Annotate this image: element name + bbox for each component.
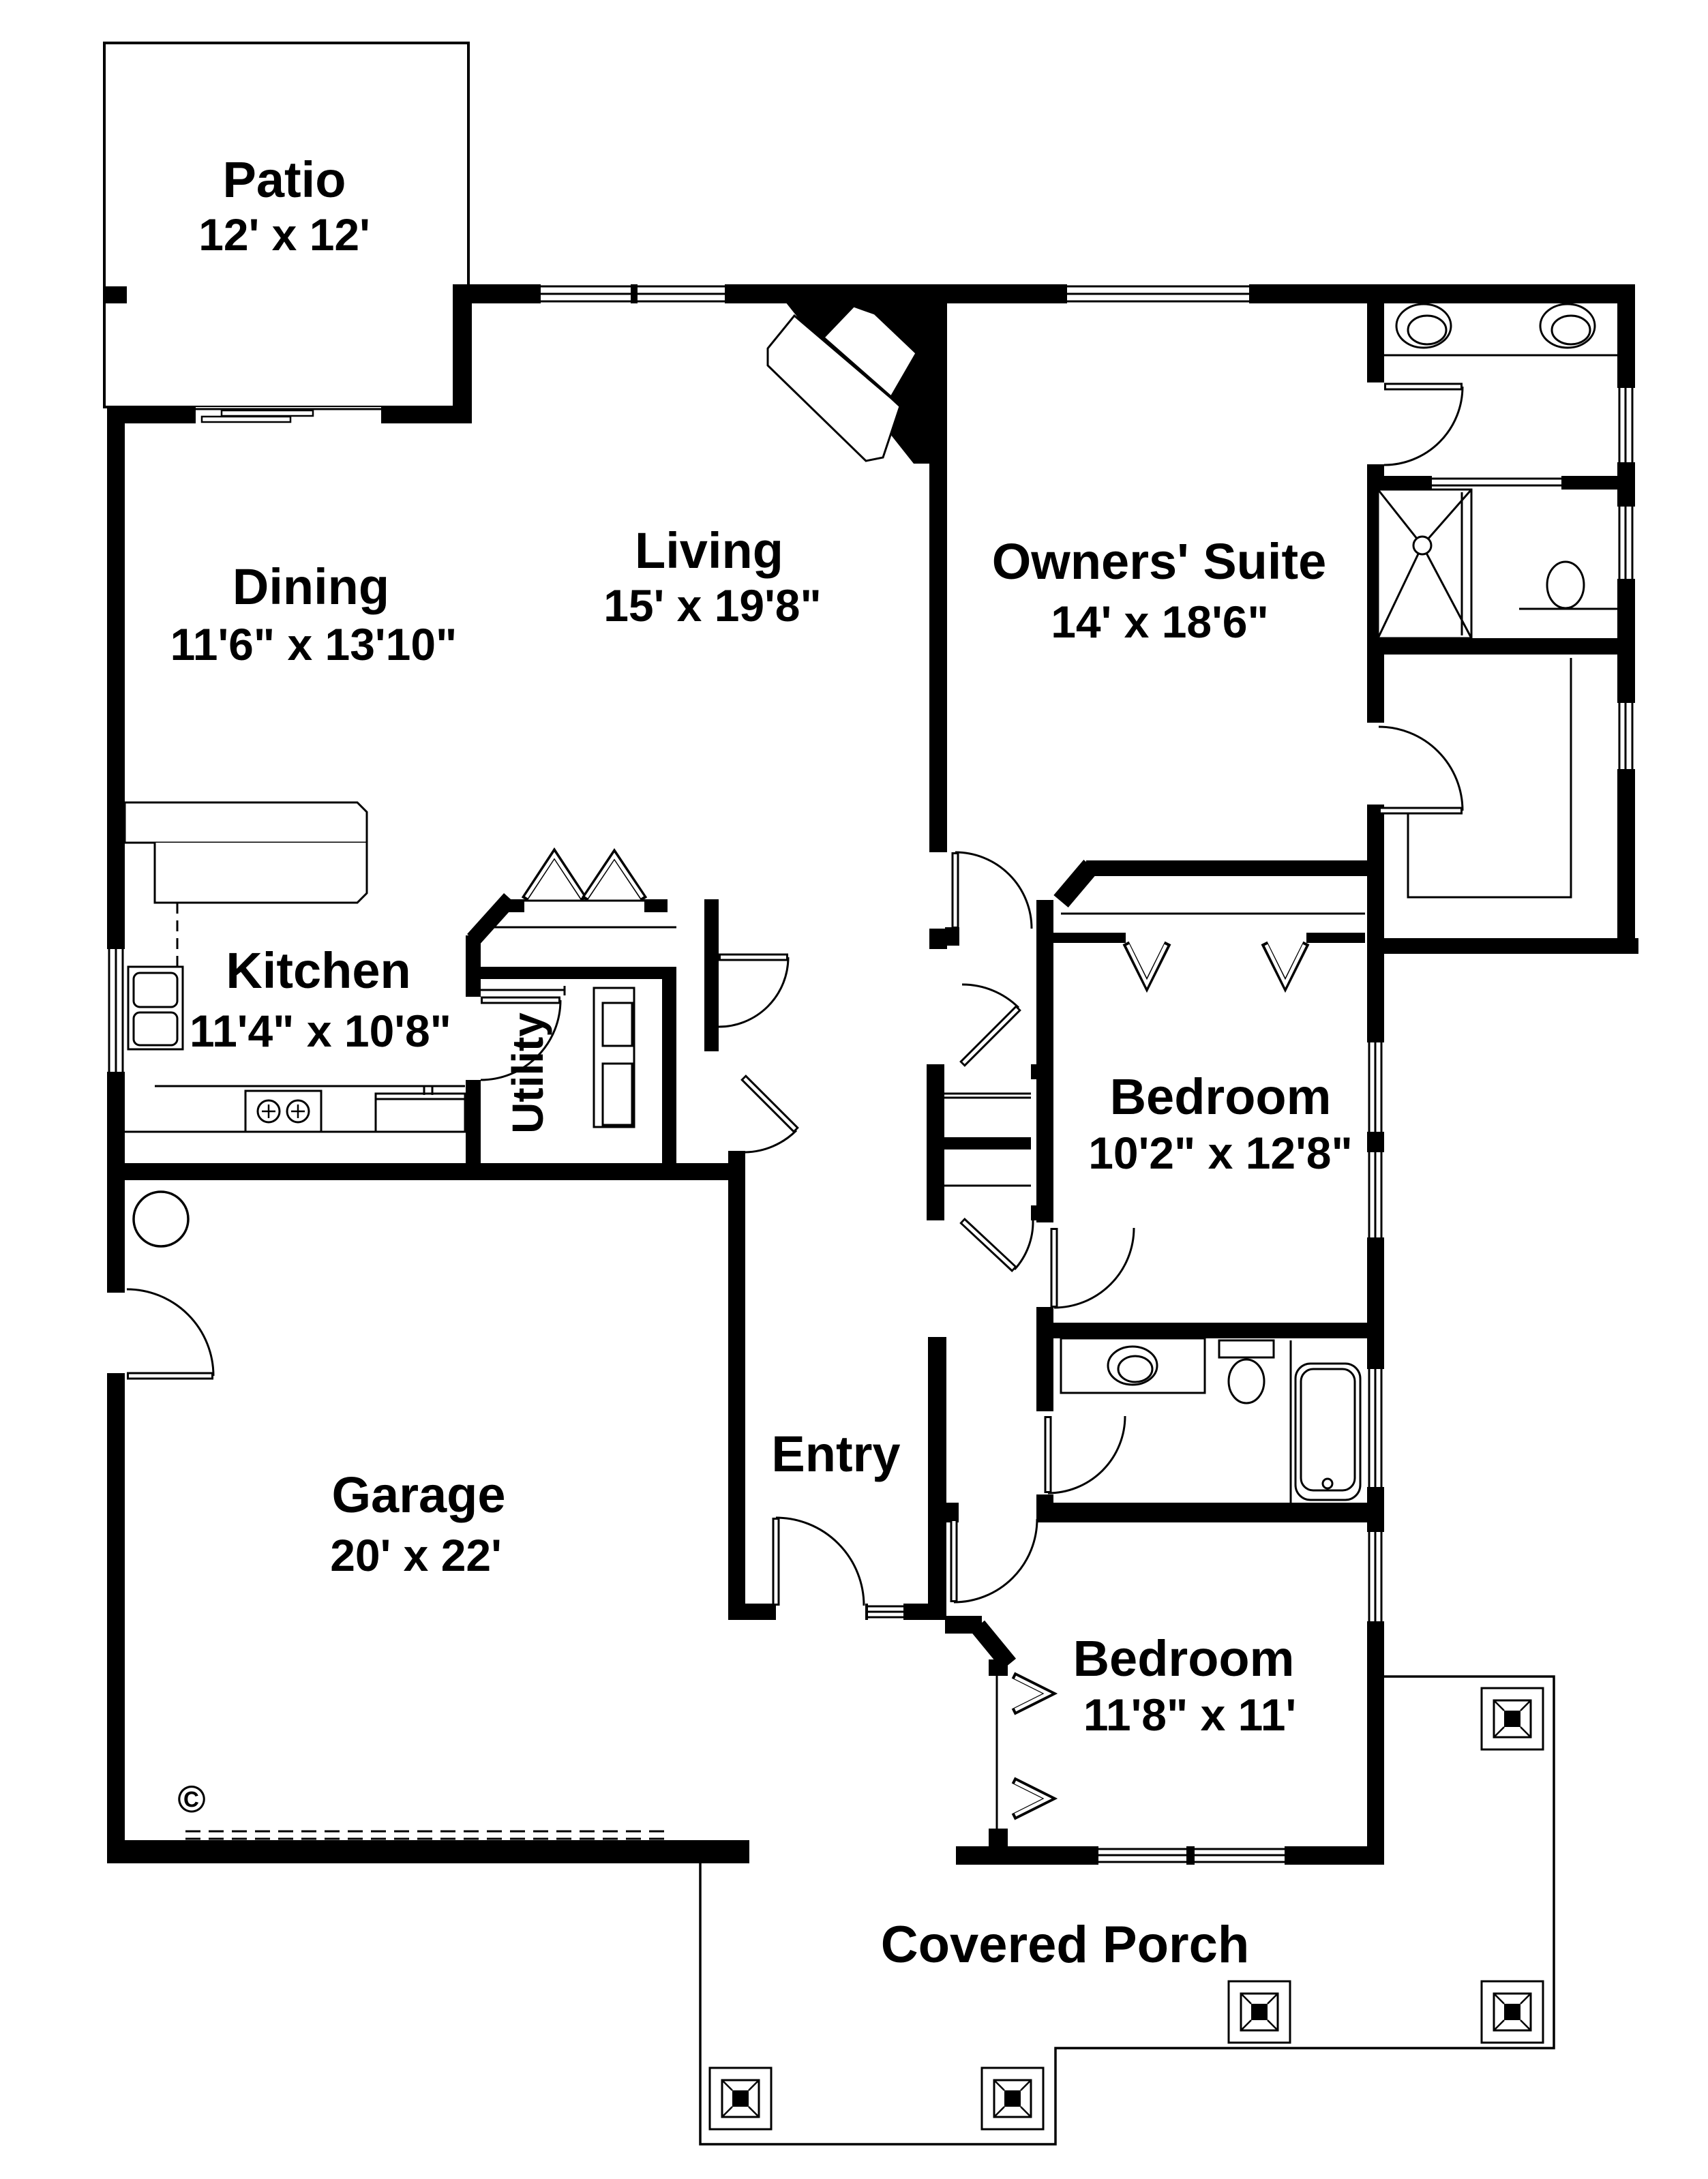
svg-text:Kitchen: Kitchen <box>226 942 410 999</box>
svg-text:11'8" x 11': 11'8" x 11' <box>1083 1689 1296 1740</box>
svg-text:Entry: Entry <box>771 1426 900 1482</box>
svg-text:11'4" x 10'8": 11'4" x 10'8" <box>190 1006 451 1056</box>
svg-text:Patio: Patio <box>223 151 346 208</box>
svg-text:©: © <box>177 1777 205 1820</box>
svg-text:14' x 18'6": 14' x 18'6" <box>1051 597 1269 647</box>
svg-text:Garage: Garage <box>331 1467 505 1523</box>
svg-text:11'6" x 13'10": 11'6" x 13'10" <box>170 619 458 670</box>
svg-text:10'2" x 12'8": 10'2" x 12'8" <box>1088 1128 1353 1178</box>
svg-text:Bedroom: Bedroom <box>1110 1068 1332 1125</box>
svg-text:15' x 19'8": 15' x 19'8" <box>603 580 822 631</box>
svg-text:Living: Living <box>635 522 783 579</box>
svg-text:12' x 12': 12' x 12' <box>198 209 370 260</box>
svg-text:Owners' Suite: Owners' Suite <box>992 533 1327 590</box>
svg-text:Covered Porch: Covered Porch <box>881 1916 1250 1974</box>
svg-text:Dining: Dining <box>233 558 389 615</box>
svg-text:Bedroom: Bedroom <box>1073 1630 1295 1687</box>
svg-text:20' x 22': 20' x 22' <box>330 1530 502 1580</box>
svg-text:Utility: Utility <box>503 1012 552 1134</box>
